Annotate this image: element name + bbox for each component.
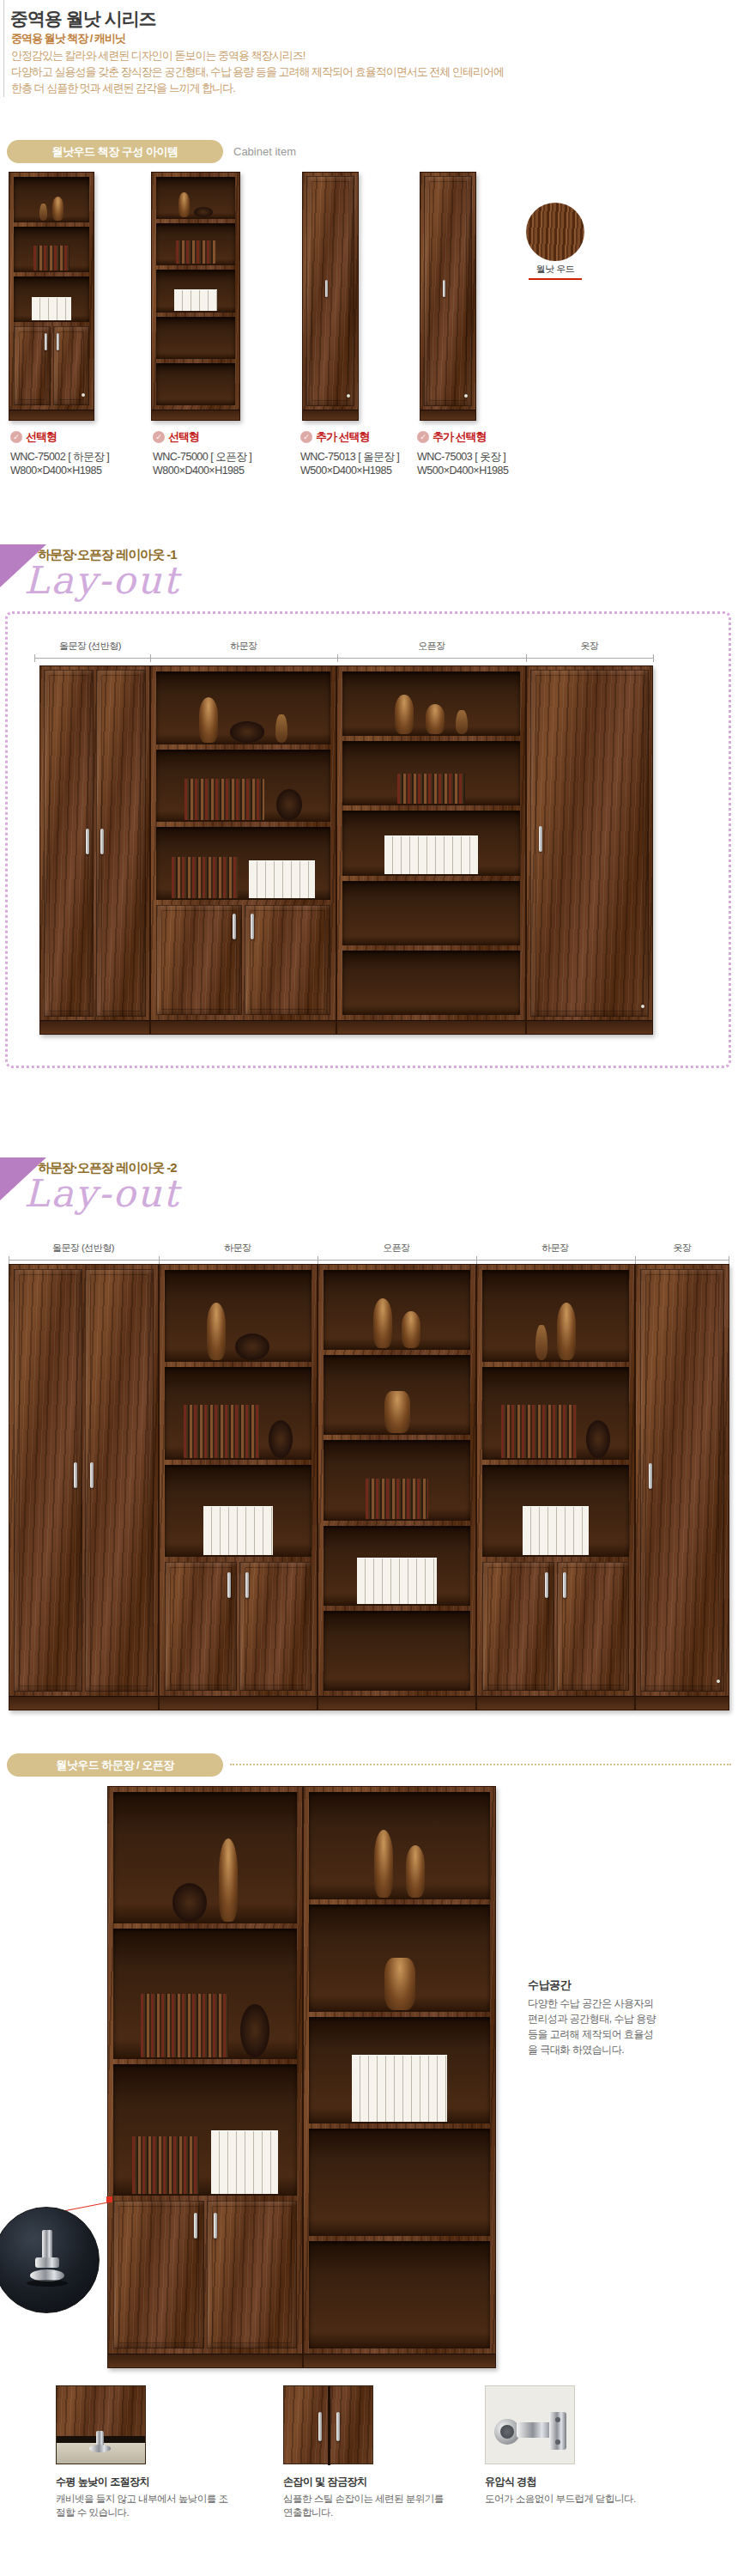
plate-decor xyxy=(172,1883,207,1922)
vase-decor xyxy=(275,714,287,742)
open-shelf xyxy=(165,1367,312,1459)
storage-line: 등을 고려해 제작되어 효율성 xyxy=(528,2026,656,2042)
open-shelf xyxy=(156,750,330,823)
check-icon: ✓ xyxy=(417,431,429,443)
product-model: WNC-75003 [ 옷장 ] xyxy=(417,450,508,465)
plate-decor xyxy=(194,207,213,217)
cabinet-plinth xyxy=(420,410,475,420)
product-size: W500×D400×H1985 xyxy=(300,465,399,477)
measure-tick xyxy=(653,654,654,662)
measure-tick xyxy=(526,654,527,662)
open-shelf xyxy=(342,951,520,1015)
measure-label: 올문장 (선반형) xyxy=(32,1242,135,1255)
open-shelf xyxy=(14,276,89,322)
measure-tick xyxy=(159,1256,160,1264)
layout2-cabinet-otjang xyxy=(635,1264,729,1710)
product-model: WNC-75013 [ 올문장 ] xyxy=(300,450,399,465)
door-handle xyxy=(233,914,236,939)
measure-tick xyxy=(150,654,151,662)
page-subtitle: 중역용 월낫 책장 / 캐비닛 xyxy=(11,31,125,46)
storage-line: 편리성과 공간형태, 수납 용량 xyxy=(528,2011,656,2026)
statue-decor xyxy=(199,697,218,742)
feature-image-leveler xyxy=(56,2385,146,2464)
cabinet-door xyxy=(14,1269,82,1692)
door-handle xyxy=(245,1572,249,1598)
plate-decor xyxy=(269,1420,293,1457)
measure-label: 하문장 xyxy=(186,1242,289,1255)
cabinet-plinth xyxy=(527,1020,652,1034)
cabinet-door xyxy=(530,670,649,1017)
statue-decor xyxy=(52,197,64,221)
plate-decor xyxy=(235,1334,269,1360)
door-handle xyxy=(194,2213,197,2239)
file-boxes-decor xyxy=(174,289,216,311)
measure-label: 오픈장 xyxy=(345,1242,448,1255)
door-handle xyxy=(86,829,89,854)
lock-keyhole xyxy=(641,1005,644,1008)
measure-tick xyxy=(9,1256,9,1264)
cabinet-plinth xyxy=(151,1020,336,1034)
layout1-script-word: Lay-out xyxy=(24,558,180,602)
open-shelf xyxy=(482,1465,629,1557)
layout1-cabinet-openjang xyxy=(336,665,526,1035)
books-decor xyxy=(184,779,264,820)
cabinet-door xyxy=(245,905,330,1015)
books-decor xyxy=(172,857,238,898)
door-handle xyxy=(74,1462,77,1488)
open-shelf xyxy=(482,1270,629,1362)
cabinet-door xyxy=(424,176,472,406)
file-boxes-decor xyxy=(249,860,315,898)
measure-line xyxy=(34,658,654,659)
open-shelf xyxy=(342,881,520,945)
measure-line xyxy=(9,1260,729,1261)
open-shelf xyxy=(156,363,235,405)
cabinet-plinth xyxy=(9,410,94,420)
dotted-rule xyxy=(230,1764,731,1765)
description-line: 안정감있는 칼라와 세련된 디자인이 돋보이는 중역용 책장시리즈! xyxy=(11,47,504,64)
measure-tick xyxy=(635,1256,636,1264)
statue-decor xyxy=(373,1298,392,1348)
product-cabinet-olmunjang xyxy=(302,172,359,421)
product-badge: 추가 선택형 xyxy=(433,429,487,445)
product-cabinet-openjang xyxy=(151,172,240,421)
lock-keyhole xyxy=(82,393,85,397)
open-shelf xyxy=(324,1611,470,1691)
lock-keyhole xyxy=(717,1680,720,1683)
cabinet-door xyxy=(482,1562,554,1691)
cabinet-plinth xyxy=(477,1696,634,1710)
leveler-detail-photo xyxy=(0,2207,100,2313)
file-boxes-decor xyxy=(203,1506,273,1555)
cabinet-plinth xyxy=(108,2354,302,2367)
door-handle xyxy=(336,2412,340,2441)
vase-decor xyxy=(535,1325,547,1360)
hinge-arm xyxy=(517,2422,553,2438)
product-badge: 추가 선택형 xyxy=(316,429,370,445)
feature-image-handle xyxy=(283,2385,373,2464)
product-cabinet-otjang xyxy=(420,172,476,421)
open-shelf xyxy=(165,1465,312,1557)
statue-decor xyxy=(207,1303,226,1360)
door-handle xyxy=(90,1462,94,1488)
open-shelf xyxy=(309,2129,490,2236)
statue-decor xyxy=(374,1830,393,1898)
books-decor xyxy=(141,1994,228,2057)
cabinet-plinth xyxy=(152,410,239,420)
door-handle xyxy=(251,914,254,939)
product-model: WNC-75000 [ 오픈장 ] xyxy=(153,450,251,465)
product-model: WNC-75002 [ 하문장 ] xyxy=(10,450,109,465)
open-shelf xyxy=(342,811,520,875)
cabinet-door xyxy=(165,1562,237,1691)
measure-label: 옷장 xyxy=(538,640,641,653)
description-line: 다양하고 실용성을 갖춘 장식장은 공간형태, 수납 용량 등을 고려해 제작되… xyxy=(11,64,504,80)
check-icon: ✓ xyxy=(300,431,312,443)
measure-tick xyxy=(476,1256,477,1264)
books-decor xyxy=(501,1405,578,1458)
product-cabinet-hamunjang xyxy=(9,172,94,421)
product-badge: 선택형 xyxy=(168,429,199,445)
cabinet-door xyxy=(113,2201,204,2348)
cabinet-plinth xyxy=(160,1696,317,1710)
cabinet-door xyxy=(239,1562,312,1691)
measure-tick xyxy=(729,1256,729,1264)
measure-tick xyxy=(34,654,35,662)
section-banner-detail: 월낫우드 하문장 / 오픈장 xyxy=(7,1753,223,1777)
open-shelf xyxy=(165,1270,312,1362)
open-shelf xyxy=(324,1526,470,1606)
statue-decor xyxy=(384,1391,410,1433)
books-decor xyxy=(366,1479,427,1518)
open-shelf xyxy=(156,827,330,900)
layout2-cabinet-hamunjang-2 xyxy=(476,1264,635,1710)
leveler-stem xyxy=(42,2230,52,2259)
wood-panel xyxy=(57,2386,146,2436)
file-boxes-decor xyxy=(357,1558,437,1604)
open-shelf xyxy=(156,177,235,219)
cabinet-door xyxy=(53,326,90,405)
layout1-cabinet-olmunjang xyxy=(39,665,150,1035)
books-decor xyxy=(184,1405,260,1458)
door-gap xyxy=(328,2386,330,2465)
statue-decor xyxy=(402,1311,420,1348)
plate-decor xyxy=(586,1420,610,1457)
door-handle xyxy=(45,333,47,350)
open-shelf xyxy=(113,2064,297,2196)
door-handle xyxy=(57,333,59,350)
cabinet-door xyxy=(640,1269,724,1692)
open-shelf xyxy=(113,1929,297,2060)
cabinet-plinth xyxy=(9,1696,158,1710)
cabinet-door xyxy=(156,905,242,1015)
statue-decor xyxy=(426,704,445,735)
detail-cabinet-openjang xyxy=(303,1786,496,2368)
left-rule xyxy=(3,0,4,97)
open-shelf xyxy=(14,227,89,272)
open-shelf xyxy=(324,1270,470,1350)
cabinet-plinth xyxy=(304,2354,495,2367)
door-handle xyxy=(214,2213,217,2239)
door-handle xyxy=(563,1572,566,1598)
plate-decor xyxy=(276,789,302,820)
cabinet-plinth xyxy=(40,1020,149,1034)
measure-tick xyxy=(337,654,338,662)
open-shelf xyxy=(14,177,89,222)
hinge-cup-inner xyxy=(500,2425,514,2439)
cabinet-plinth xyxy=(636,1696,729,1710)
statue-decor xyxy=(395,695,414,734)
leveler-foot-base xyxy=(89,2445,111,2452)
door-handle xyxy=(227,1572,231,1598)
lock-keyhole xyxy=(464,394,468,398)
product-badge: 선택형 xyxy=(26,429,57,445)
cabinet-plinth xyxy=(318,1696,475,1710)
section-banner-english: Cabinet item xyxy=(233,145,296,158)
lock-keyhole xyxy=(347,394,350,398)
feature-desc: 심플한 스틸 손잡이는 세련된 분위기를 연출합니다. xyxy=(283,2492,455,2519)
feature-title: 손잡이 및 잠금장치 xyxy=(283,2475,465,2489)
storage-title: 수납공간 xyxy=(528,1978,571,1993)
description-line: 한층 더 심플한 멋과 세련된 감각을 느끼게 합니다. xyxy=(11,80,504,96)
feature-title: 유압식 경첩 xyxy=(485,2475,691,2489)
measure-label: 하문장 xyxy=(504,1242,607,1255)
plate-decor xyxy=(240,2004,269,2057)
cabinet-door xyxy=(96,670,146,1017)
vase-decor xyxy=(456,710,468,734)
layout2-cabinet-hamunjang xyxy=(159,1264,318,1710)
layout2-cabinet-olmunjang xyxy=(9,1264,159,1710)
measure-label: 옷장 xyxy=(631,1242,734,1255)
cabinet-door xyxy=(44,670,94,1017)
file-boxes-decor xyxy=(32,297,72,320)
feature-desc: 도어가 소음없이 부드럽게 닫힙니다. xyxy=(485,2492,687,2506)
door-handle xyxy=(539,826,542,852)
cabinet-plinth xyxy=(337,1020,525,1034)
hinge-detail-photo xyxy=(485,2385,575,2464)
statue-decor xyxy=(219,1838,238,1922)
file-boxes-decor xyxy=(523,1506,589,1555)
open-shelf xyxy=(309,2017,490,2124)
door-handle xyxy=(443,280,445,297)
door-handle xyxy=(649,1463,652,1489)
open-shelf xyxy=(342,671,520,736)
books-decor xyxy=(397,774,465,805)
cabinet-door xyxy=(207,2201,298,2348)
door-handle xyxy=(318,2412,322,2441)
cabinet-door xyxy=(14,326,51,405)
check-icon: ✓ xyxy=(10,431,22,443)
open-shelf xyxy=(342,741,520,805)
open-shelf xyxy=(156,223,235,265)
open-shelf xyxy=(309,1792,490,1899)
hinge-screw xyxy=(555,2417,560,2422)
door-handle xyxy=(325,280,328,297)
cabinet-door xyxy=(85,1269,154,1692)
cabinet-door xyxy=(557,1562,629,1691)
catalog-page: 중역용 월낫 시리즈 중역용 월낫 책장 / 캐비닛 안정감있는 칼라와 세련된… xyxy=(0,0,738,2576)
cabinet-door xyxy=(306,176,354,406)
open-shelf xyxy=(156,317,235,359)
file-boxes-decor xyxy=(211,2130,278,2194)
statue-decor xyxy=(557,1303,576,1360)
open-shelf xyxy=(309,1905,490,2012)
layout2-script-word: Lay-out xyxy=(24,1171,180,1215)
open-shelf xyxy=(309,2241,490,2348)
measure-label: 올문장 (선반형) xyxy=(39,640,142,653)
product-size: W800×D400×H1985 xyxy=(153,465,251,477)
door-handle xyxy=(545,1572,548,1598)
books-decor xyxy=(176,240,215,264)
storage-line: 을 극대화 하였습니다. xyxy=(528,2042,656,2057)
feature-title: 수평 높낮이 조절장치 xyxy=(56,2475,238,2489)
statue-decor xyxy=(178,192,190,217)
open-shelf xyxy=(324,1355,470,1435)
measure-label: 하문장 xyxy=(192,640,295,653)
open-shelf xyxy=(324,1440,470,1520)
layout2-cabinet-openjang xyxy=(318,1264,476,1710)
plate-decor xyxy=(230,721,264,742)
leveler-nut xyxy=(35,2257,59,2268)
feature-desc: 캐비넷을 들지 않고 내부에서 높낮이를 조절할 수 있습니다. xyxy=(56,2492,234,2519)
file-boxes-decor xyxy=(352,2055,447,2123)
books-decor xyxy=(132,2136,199,2194)
product-size: W800×D400×H1985 xyxy=(10,465,109,477)
check-icon: ✓ xyxy=(153,431,165,443)
layout1-cabinet-otjang xyxy=(526,665,653,1035)
wood-swatch-label: 월낫 우드 xyxy=(523,263,588,276)
file-boxes-decor xyxy=(384,835,477,873)
open-shelf xyxy=(156,671,330,744)
door-handle xyxy=(100,829,104,854)
statue-decor xyxy=(384,1958,415,2009)
statue-decor xyxy=(406,1845,425,1897)
layout1-cabinet-hamunjang xyxy=(150,665,336,1035)
cabinet-plinth xyxy=(303,410,358,420)
wood-swatch xyxy=(526,203,584,261)
measure-tick xyxy=(318,1256,318,1264)
storage-line: 다양한 수납 공간은 사용자의 xyxy=(528,1996,656,2011)
open-shelf xyxy=(482,1367,629,1459)
detail-cabinet-hamunjang xyxy=(107,1786,303,2368)
leveler-shadow xyxy=(27,2280,68,2287)
page-title: 중역용 월낫 시리즈 xyxy=(10,7,156,31)
hinge-screw xyxy=(555,2439,560,2445)
product-size: W500×D400×H1985 xyxy=(417,465,508,477)
vase-decor xyxy=(39,204,47,221)
open-shelf xyxy=(113,1792,297,1923)
section-banner-cabinet-items: 월낫우드 책장 구성 아이템 xyxy=(7,140,223,163)
wood-swatch-underline xyxy=(529,278,582,280)
books-decor xyxy=(33,246,70,270)
measure-label: 오픈장 xyxy=(380,640,483,653)
open-shelf xyxy=(156,270,235,312)
